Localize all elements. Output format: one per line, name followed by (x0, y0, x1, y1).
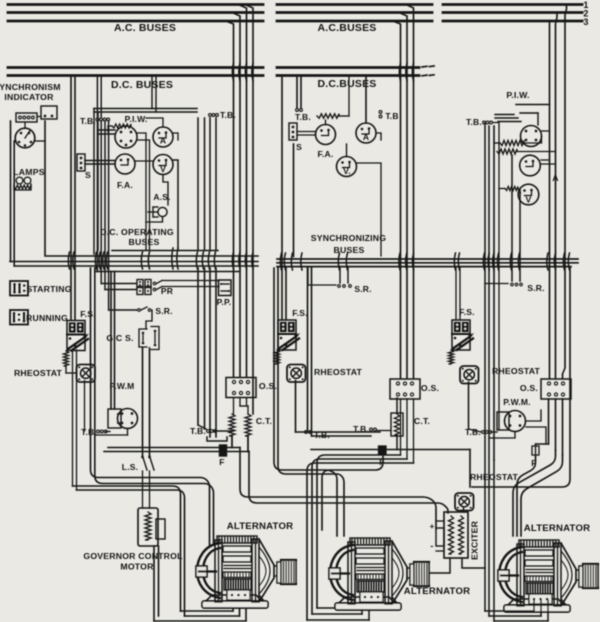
svg-text:S.R.: S.R. (155, 306, 172, 316)
svg-text:LAMPS: LAMPS (13, 167, 44, 177)
svg-text:+: + (430, 522, 435, 531)
svg-text:A.C. BUSES: A.C. BUSES (114, 22, 176, 34)
svg-text:D.C.BUSES: D.C.BUSES (318, 78, 377, 90)
svg-text:-: - (430, 541, 433, 551)
svg-text:F.A.: F.A. (318, 149, 334, 159)
svg-text:F: F (219, 457, 224, 467)
svg-text:3: 3 (583, 17, 588, 27)
svg-text:S: S (85, 170, 91, 180)
svg-text:S.R.: S.R. (354, 284, 371, 294)
svg-text:BUSES: BUSES (129, 237, 160, 247)
svg-text:V: V (526, 195, 532, 205)
svg-text:C.T.: C.T. (256, 416, 272, 426)
svg-text:D.C. OPERATING: D.C. OPERATING (100, 227, 174, 237)
svg-text:GOVERNOR CONTROL: GOVERNOR CONTROL (83, 551, 183, 561)
svg-text:BUSES: BUSES (334, 245, 365, 255)
svg-text:A.C.BUSES: A.C.BUSES (318, 22, 377, 34)
svg-text:L.S.: L.S. (122, 462, 138, 472)
svg-text:P.I.W.: P.I.W. (506, 90, 529, 100)
svg-text:A: A (552, 173, 559, 183)
svg-text:A: A (160, 136, 166, 146)
svg-text:ALTERNATOR: ALTERNATOR (404, 586, 471, 597)
svg-text:F.A.: F.A. (117, 180, 133, 190)
svg-text:T.B.: T.B. (220, 110, 236, 120)
svg-text:INDICATOR: INDICATOR (4, 92, 54, 102)
svg-text:T.B.: T.B. (295, 112, 311, 122)
svg-text:SYNCHRONISM: SYNCHRONISM (0, 82, 61, 92)
svg-text:D.C. BUSES: D.C. BUSES (111, 79, 173, 91)
svg-text:ALTERNATOR: ALTERNATOR (227, 521, 294, 532)
svg-text:F.S.: F.S. (80, 309, 95, 319)
svg-text:RHEOSTAT: RHEOSTAT (14, 368, 63, 378)
svg-text:T.B.: T.B. (353, 424, 369, 434)
svg-text:T.B.: T.B. (466, 117, 482, 127)
svg-text:F.S.: F.S. (459, 307, 474, 317)
svg-text:P.W.M: P.W.M (110, 381, 135, 391)
svg-text:ALTERNATOR: ALTERNATOR (524, 523, 591, 534)
svg-text:A: A (363, 132, 369, 142)
svg-text:F.S.: F.S. (292, 308, 307, 318)
svg-text:MOTOR: MOTOR (120, 562, 154, 572)
svg-text:T.B.: T.B. (80, 116, 96, 126)
svg-text:RHEOSTAT: RHEOSTAT (314, 367, 363, 377)
svg-text:SYNCHRONIZING: SYNCHRONIZING (311, 233, 387, 243)
svg-text:STARTING: STARTING (26, 284, 71, 294)
svg-text:V.: V. (343, 166, 351, 176)
svg-text:RHEOSTAT: RHEOSTAT (492, 366, 541, 376)
svg-text:S: S (296, 142, 302, 152)
svg-text:T.B.: T.B. (314, 430, 330, 440)
svg-text:RUNNING: RUNNING (26, 313, 68, 323)
svg-text:P.W.M.: P.W.M. (503, 397, 531, 407)
svg-text:EXCITER: EXCITER (470, 520, 480, 560)
svg-text:P.P.: P.P. (217, 297, 232, 307)
svg-text:C.T.: C.T. (414, 416, 430, 426)
svg-text:V: V (160, 164, 166, 174)
svg-text:T.B.: T.B. (465, 427, 481, 437)
svg-text:T.B: T.B (385, 111, 398, 121)
svg-text:PR: PR (161, 286, 173, 296)
svg-text:P.I.W.: P.I.W. (125, 114, 148, 124)
svg-text:S.R.: S.R. (527, 283, 544, 293)
svg-text:O.S.: O.S. (421, 383, 439, 393)
svg-text:O.S.: O.S. (520, 383, 538, 393)
